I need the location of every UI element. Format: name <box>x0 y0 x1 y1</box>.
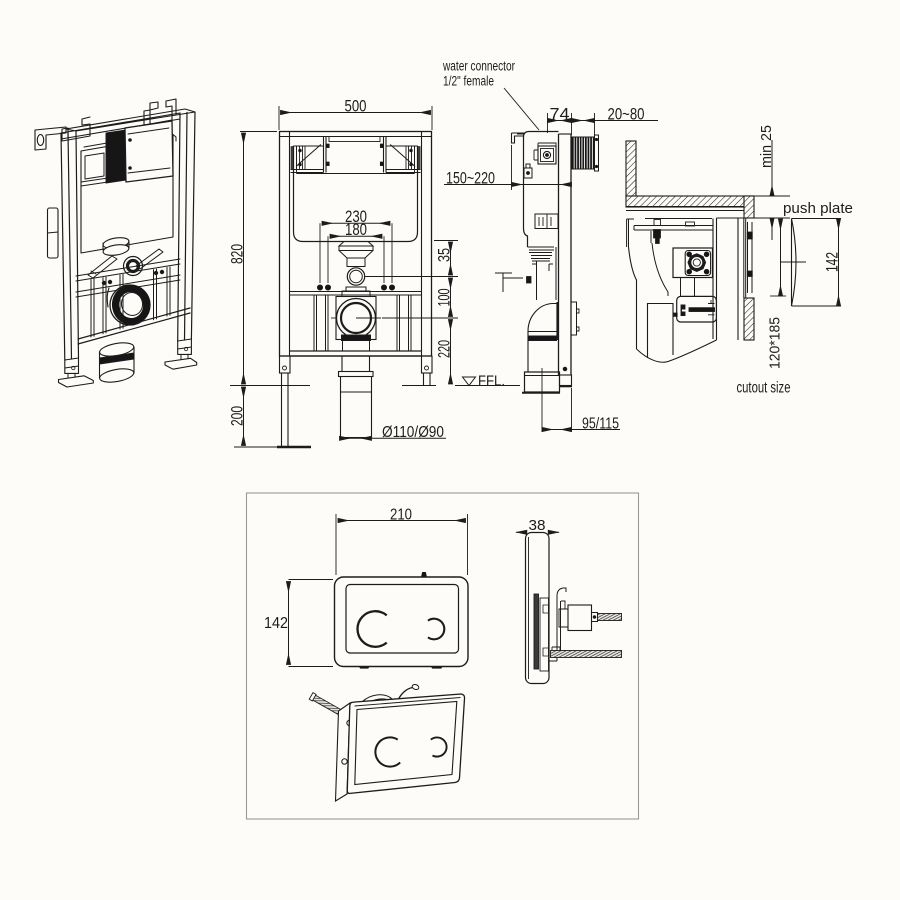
svg-text:FFL.: FFL. <box>478 373 505 389</box>
svg-text:38: 38 <box>529 517 546 534</box>
svg-text:cutout size: cutout size <box>737 379 791 396</box>
svg-text:1/2" female: 1/2" female <box>443 74 494 89</box>
svg-text:push plate: push plate <box>783 200 853 217</box>
svg-text:142: 142 <box>264 615 288 632</box>
svg-text:142: 142 <box>823 252 841 272</box>
svg-text:water connector: water connector <box>442 59 515 74</box>
svg-text:120*185: 120*185 <box>766 317 783 369</box>
